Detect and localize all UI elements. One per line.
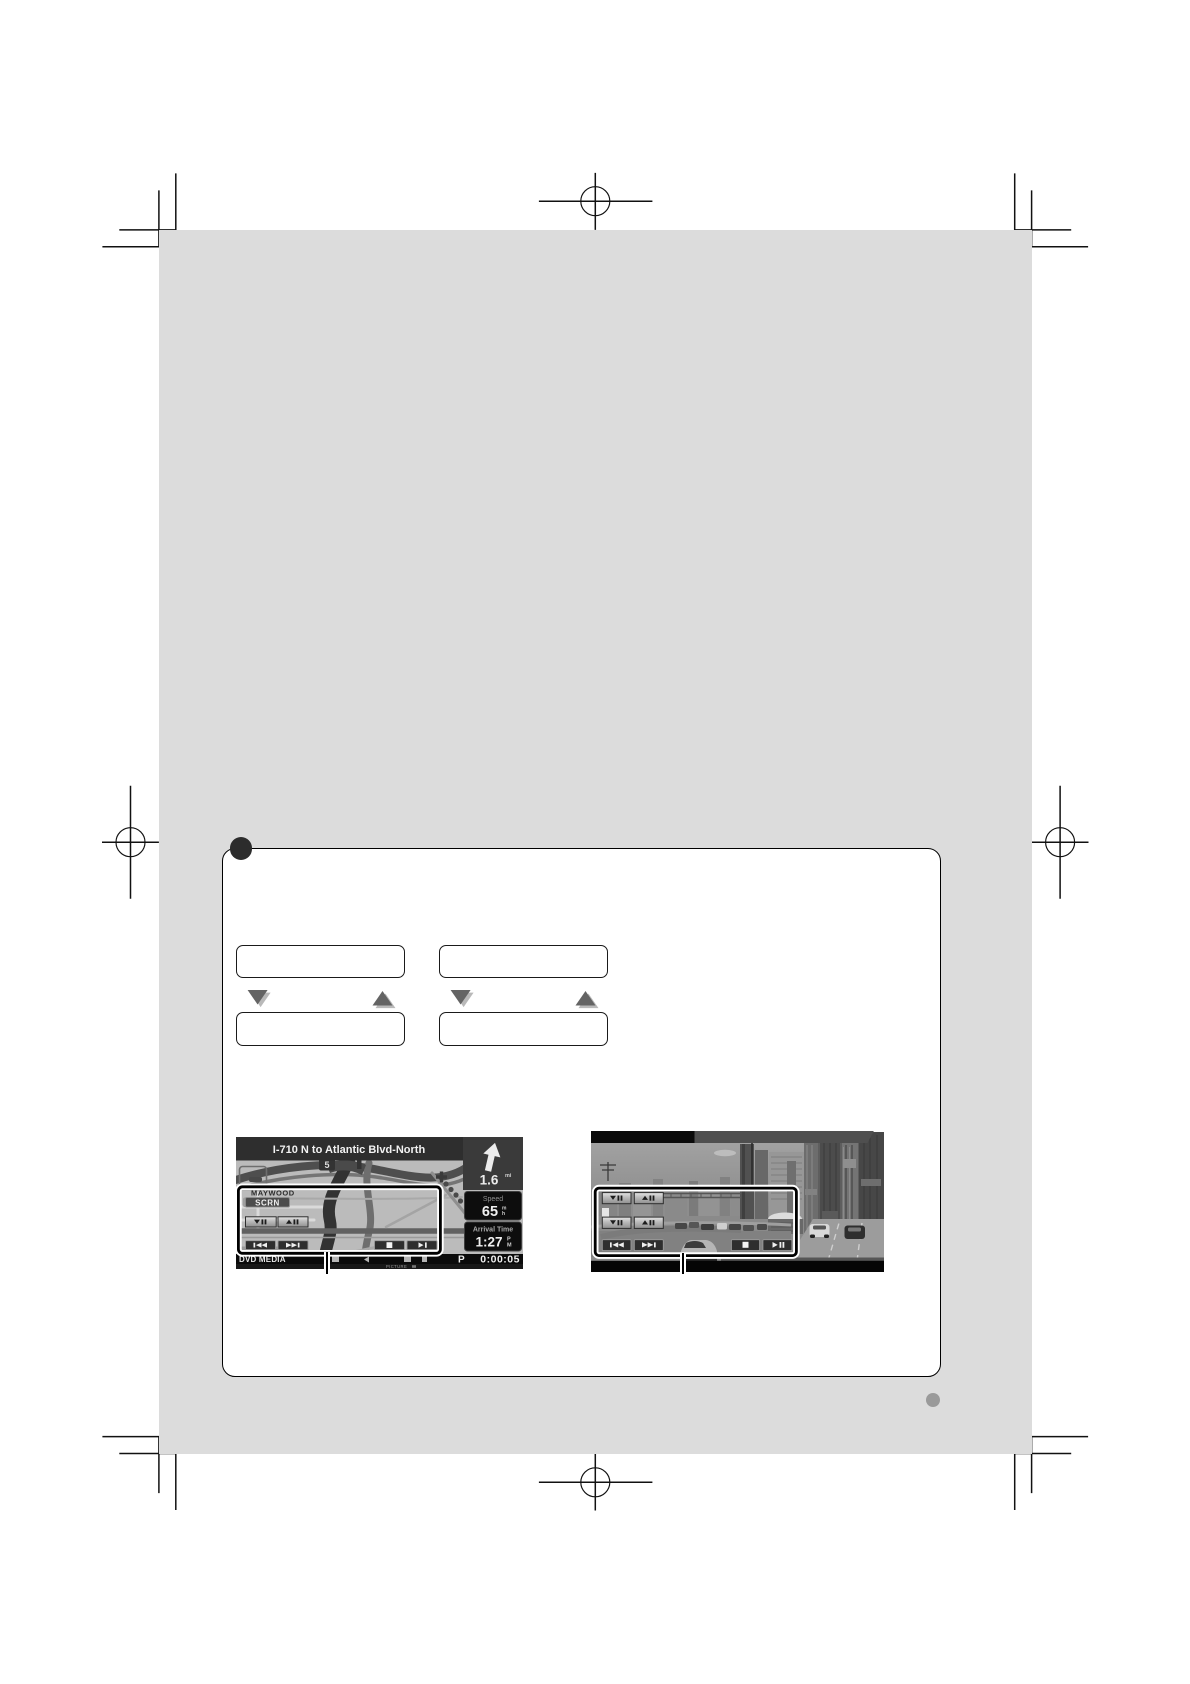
svg-text:SCRN: SCRN <box>255 1198 280 1207</box>
svg-text:5: 5 <box>325 1160 330 1170</box>
svg-text:P: P <box>458 1255 465 1266</box>
svg-text:1.6: 1.6 <box>480 1173 499 1188</box>
svg-text:0:00:05: 0:00:05 <box>481 1254 521 1266</box>
svg-text:Speed: Speed <box>483 1196 503 1203</box>
svg-text:I-710 N to Atlantic Blvd-North: I-710 N to Atlantic Blvd-North <box>273 1144 426 1156</box>
svg-text:h: h <box>502 1211 505 1217</box>
svg-text:65: 65 <box>482 1204 498 1220</box>
svg-text:mi: mi <box>505 1173 512 1179</box>
svg-text:1:27: 1:27 <box>476 1235 503 1250</box>
svg-text:M: M <box>507 1243 512 1249</box>
svg-text:PICTURE: PICTURE <box>386 1264 407 1269</box>
svg-text:Arrival Time: Arrival Time <box>473 1227 513 1234</box>
